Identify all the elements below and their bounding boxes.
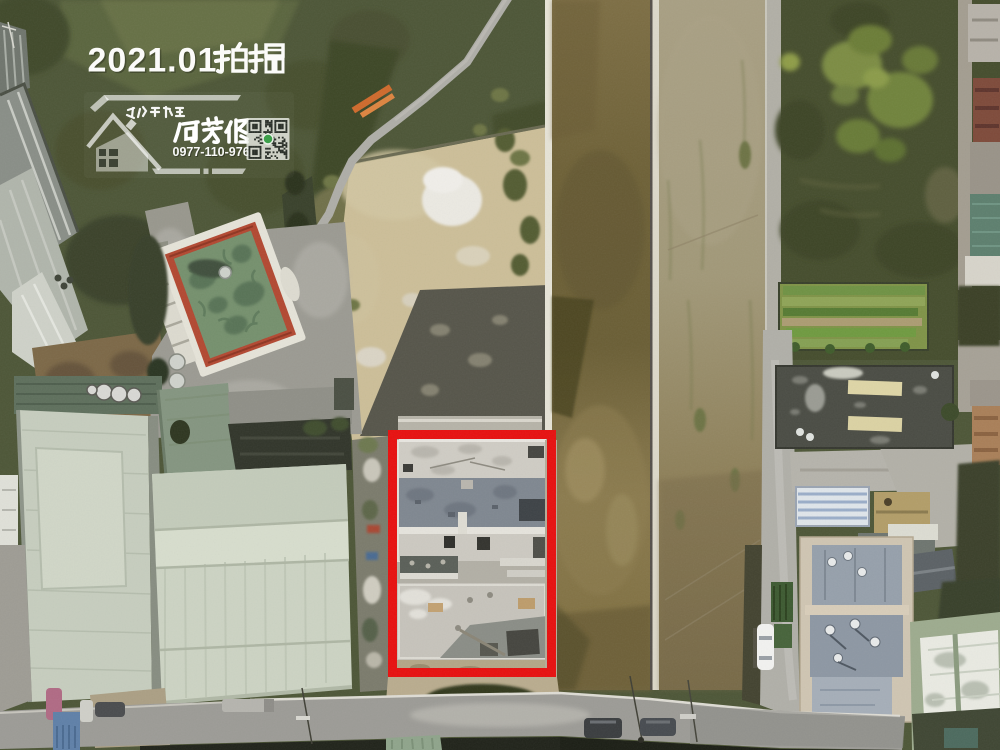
svg-text:2021.01: 2021.01	[88, 42, 218, 80]
svg-text:0977-110-976: 0977-110-976	[173, 145, 250, 159]
